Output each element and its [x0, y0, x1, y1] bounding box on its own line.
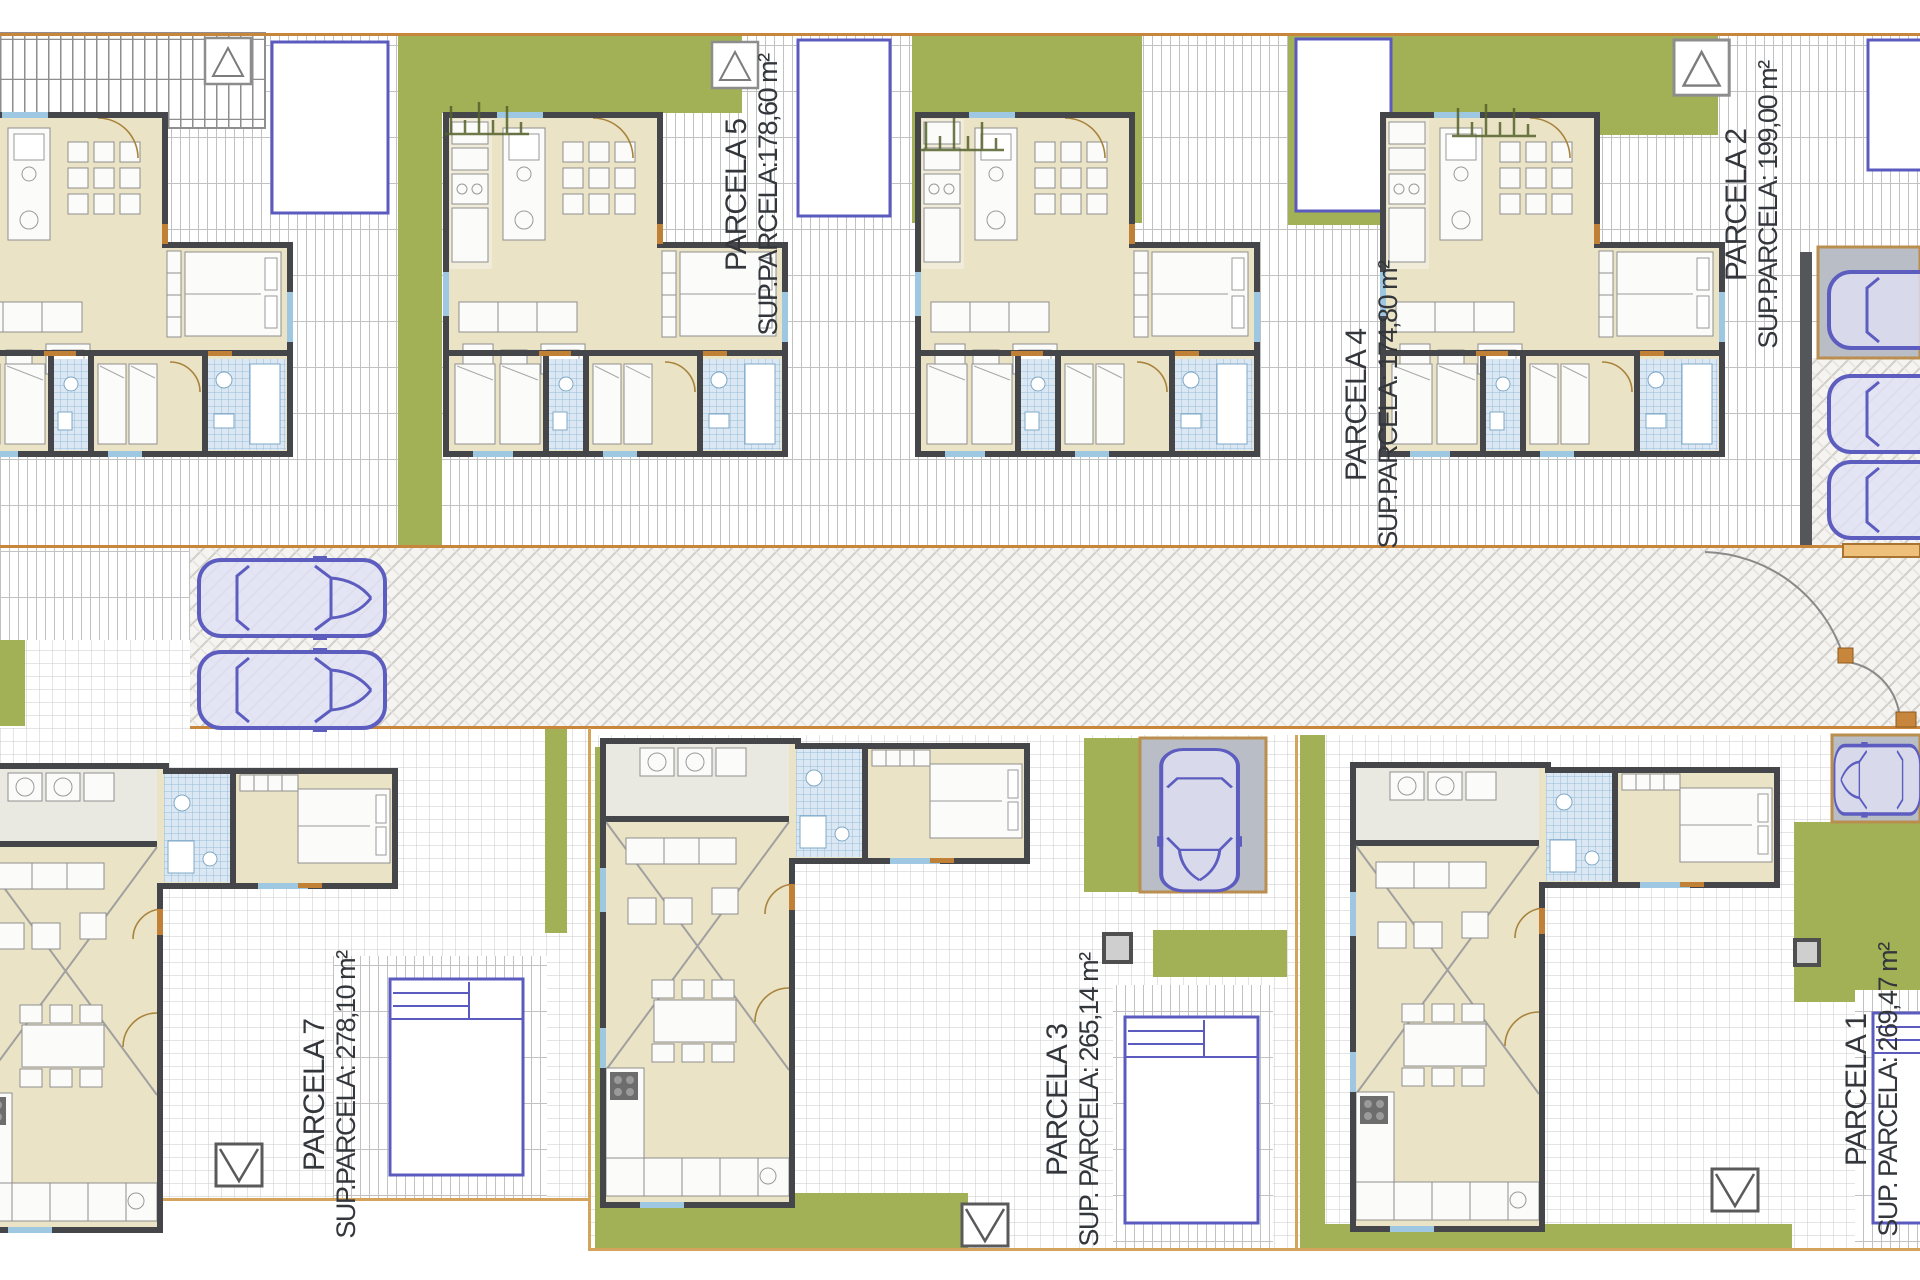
road-herringbone-paving [190, 548, 1920, 728]
car-icon [1835, 742, 1920, 818]
swimming-pool-icon [798, 40, 890, 216]
shed-roof-icon [1674, 40, 1729, 95]
swimming-pool-icon [1296, 39, 1391, 211]
car-icon [1829, 458, 1920, 542]
utility-box-icon [1104, 934, 1131, 962]
shed-v-icon [962, 1204, 1008, 1246]
car-icon [1829, 372, 1920, 456]
shed-v-icon [1712, 1169, 1758, 1211]
car-icon [199, 648, 385, 732]
swimming-pool-icon [1868, 40, 1920, 170]
site-plan-canvas: PARCELA 5 SUP.PARCELA:178,60 m² PARCELA … [0, 0, 1920, 1280]
swimming-pool-icon [1873, 1013, 1920, 1223]
gate-post [1896, 712, 1916, 727]
gate-icon [1843, 544, 1920, 557]
swimming-pool-icon [272, 42, 388, 213]
swimming-pool-icon [1125, 1017, 1258, 1223]
utility-box-icon [1795, 940, 1819, 965]
shed-roof-icon [205, 38, 251, 84]
shed-v-icon [216, 1144, 262, 1186]
site-plan-drawing [0, 0, 1920, 1280]
car-icon [199, 556, 385, 640]
swimming-pool-icon [390, 979, 523, 1175]
car-icon [1829, 268, 1920, 352]
shed-roof-icon [712, 42, 758, 88]
boundary-wall [1800, 252, 1812, 548]
gate-post [1838, 648, 1853, 663]
car-icon [1157, 750, 1242, 891]
